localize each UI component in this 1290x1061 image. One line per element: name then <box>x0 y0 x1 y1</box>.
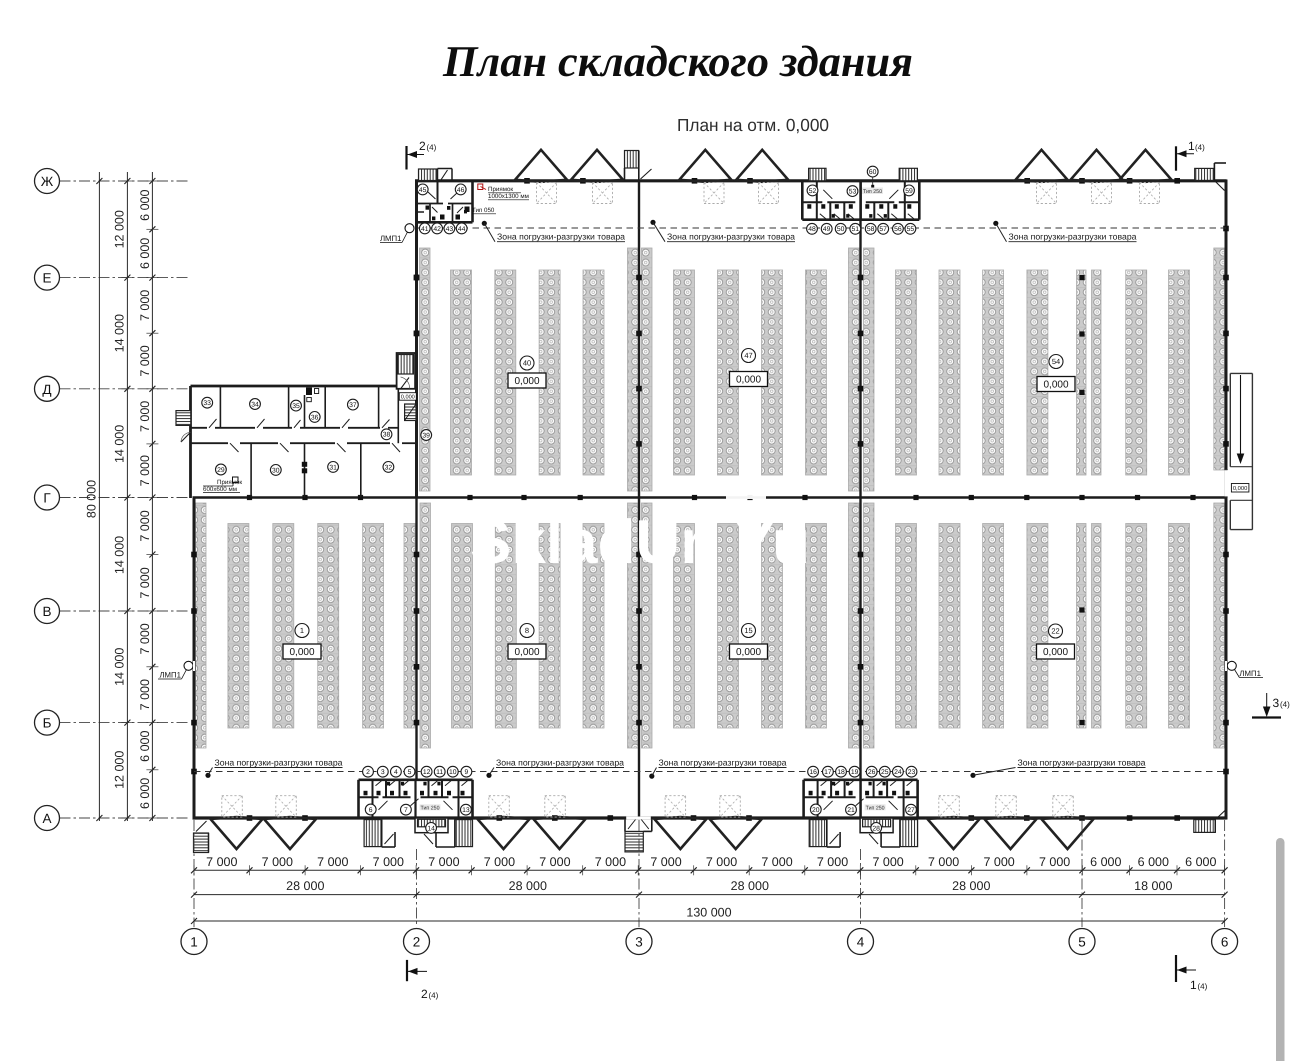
svg-text:Б: Б <box>43 716 52 731</box>
svg-text:1: 1 <box>300 626 304 635</box>
svg-text:28 000: 28 000 <box>286 879 324 893</box>
svg-text:7 000: 7 000 <box>138 401 152 432</box>
svg-text:14 000: 14 000 <box>113 536 127 574</box>
svg-text:130 000: 130 000 <box>686 905 731 919</box>
svg-text:40: 40 <box>523 359 531 368</box>
svg-text:(4): (4) <box>429 991 439 1000</box>
svg-text:Приямок: Приямок <box>217 479 242 486</box>
svg-text:14 000: 14 000 <box>113 314 127 352</box>
svg-text:7 000: 7 000 <box>138 510 152 541</box>
svg-text:Зона погрузки-разгрузки товара: Зона погрузки-разгрузки товара <box>659 757 787 767</box>
svg-text:0,000: 0,000 <box>736 375 761 386</box>
svg-text:23: 23 <box>908 769 916 776</box>
svg-text:А: А <box>42 811 51 826</box>
svg-text:19: 19 <box>851 769 859 776</box>
svg-text:7 000: 7 000 <box>262 855 293 869</box>
svg-text:Зона погрузки-разгрузки товара: Зона погрузки-разгрузки товара <box>497 232 625 242</box>
svg-text:44: 44 <box>458 226 466 233</box>
svg-text:28 000: 28 000 <box>509 879 547 893</box>
svg-text:7 000: 7 000 <box>761 855 792 869</box>
svg-text:17: 17 <box>824 769 832 776</box>
svg-text:Зона погрузки-разгрузки товара: Зона погрузки-разгрузки товара <box>496 757 624 767</box>
svg-text:9: 9 <box>465 769 469 776</box>
svg-text:2: 2 <box>421 987 428 1001</box>
svg-text:11: 11 <box>436 769 443 776</box>
svg-text:38: 38 <box>383 432 391 439</box>
svg-text:7 000: 7 000 <box>206 855 237 869</box>
svg-text:29: 29 <box>217 467 225 474</box>
svg-text:План складского здания: План складского здания <box>442 37 913 86</box>
svg-text:1: 1 <box>1188 139 1195 153</box>
svg-text:7 000: 7 000 <box>138 567 152 598</box>
svg-text:Г: Г <box>43 491 51 506</box>
svg-text:24: 24 <box>894 769 902 776</box>
svg-text:Зона погрузки-разгрузки товара: Зона погрузки-разгрузки товара <box>1018 757 1146 767</box>
svg-text:30: 30 <box>272 467 280 474</box>
svg-text:7 000: 7 000 <box>138 290 152 321</box>
svg-text:5: 5 <box>408 769 412 776</box>
svg-text:5: 5 <box>1078 935 1086 950</box>
svg-text:0,000: 0,000 <box>1043 380 1068 391</box>
svg-text:3: 3 <box>635 935 643 950</box>
svg-text:60: 60 <box>869 169 877 176</box>
svg-text:25: 25 <box>881 769 889 776</box>
svg-text:46: 46 <box>457 187 465 194</box>
svg-text:32: 32 <box>385 464 393 471</box>
svg-text:6 000: 6 000 <box>138 778 152 809</box>
svg-text:7 000: 7 000 <box>706 855 737 869</box>
svg-text:56: 56 <box>894 226 902 233</box>
svg-text:2: 2 <box>419 139 426 153</box>
svg-text:(4): (4) <box>1198 982 1208 991</box>
svg-text:80 000: 80 000 <box>85 480 99 518</box>
svg-text:53: 53 <box>849 189 857 196</box>
svg-text:27: 27 <box>907 807 915 814</box>
svg-text:6 000: 6 000 <box>1090 855 1121 869</box>
svg-text:7: 7 <box>404 807 408 814</box>
svg-text:0,000: 0,000 <box>514 376 539 387</box>
svg-text:12 000: 12 000 <box>113 210 127 248</box>
svg-text:12 000: 12 000 <box>113 751 127 789</box>
svg-text:28 000: 28 000 <box>731 879 769 893</box>
svg-text:6: 6 <box>369 807 373 814</box>
svg-text:7 000: 7 000 <box>872 855 903 869</box>
svg-text:3: 3 <box>381 769 385 776</box>
svg-text:18 000: 18 000 <box>1134 879 1172 893</box>
svg-text:42: 42 <box>433 226 441 233</box>
svg-text:6 000: 6 000 <box>1138 855 1169 869</box>
svg-text:(4): (4) <box>1280 700 1290 709</box>
svg-text:49: 49 <box>823 226 831 233</box>
svg-text:51: 51 <box>852 226 860 233</box>
svg-text:Тип 250: Тип 250 <box>863 189 882 195</box>
svg-text:SkladUn Yu: SkladUn Yu <box>470 508 810 577</box>
svg-text:6 000: 6 000 <box>138 238 152 269</box>
svg-text:7 000: 7 000 <box>1039 855 1070 869</box>
svg-text:7 000: 7 000 <box>650 855 681 869</box>
svg-text:26: 26 <box>868 769 876 776</box>
svg-text:0,000: 0,000 <box>401 395 415 401</box>
svg-text:14: 14 <box>427 825 435 832</box>
svg-text:41: 41 <box>421 226 429 233</box>
svg-text:50: 50 <box>837 226 845 233</box>
svg-text:Приямок: Приямок <box>488 186 513 193</box>
svg-text:Тип 250: Тип 250 <box>866 805 885 811</box>
svg-text:22: 22 <box>1051 627 1059 636</box>
svg-text:48: 48 <box>808 226 816 233</box>
svg-text:7 000: 7 000 <box>983 855 1014 869</box>
svg-text:ЛМП1: ЛМП1 <box>1239 669 1261 678</box>
svg-text:7 000: 7 000 <box>138 623 152 654</box>
svg-text:6 000: 6 000 <box>1185 855 1216 869</box>
svg-text:1: 1 <box>1190 978 1197 992</box>
svg-text:20: 20 <box>812 807 820 814</box>
svg-text:Тип 250: Тип 250 <box>421 805 440 811</box>
svg-text:34: 34 <box>251 401 259 408</box>
svg-text:7 000: 7 000 <box>928 855 959 869</box>
svg-text:0,000: 0,000 <box>289 647 314 658</box>
svg-text:36: 36 <box>311 414 319 421</box>
svg-text:Зона погрузки-разгрузки товара: Зона погрузки-разгрузки товара <box>215 757 343 767</box>
svg-text:28: 28 <box>872 825 880 832</box>
svg-text:6: 6 <box>1221 935 1229 950</box>
svg-text:ЛМП1: ЛМП1 <box>380 234 402 243</box>
svg-text:55: 55 <box>907 226 915 233</box>
svg-text:7 000: 7 000 <box>138 345 152 376</box>
svg-text:7 000: 7 000 <box>817 855 848 869</box>
svg-text:Тип 050: Тип 050 <box>472 207 495 214</box>
svg-text:13: 13 <box>462 807 470 814</box>
svg-text:7 000: 7 000 <box>317 855 348 869</box>
svg-text:37: 37 <box>349 402 357 409</box>
svg-text:14 000: 14 000 <box>113 648 127 686</box>
svg-text:52: 52 <box>809 188 817 195</box>
svg-text:0,000: 0,000 <box>1233 485 1248 492</box>
svg-text:(4): (4) <box>1195 143 1205 152</box>
svg-text:7 000: 7 000 <box>138 679 152 710</box>
svg-text:7 000: 7 000 <box>373 855 404 869</box>
svg-text:2: 2 <box>366 769 370 776</box>
svg-text:12: 12 <box>423 769 431 776</box>
svg-text:6 000: 6 000 <box>138 190 152 221</box>
svg-text:1: 1 <box>190 935 198 950</box>
svg-text:4: 4 <box>857 935 865 950</box>
svg-text:7 000: 7 000 <box>138 455 152 486</box>
svg-text:39: 39 <box>422 432 430 439</box>
svg-text:47: 47 <box>744 351 752 360</box>
svg-text:3: 3 <box>1273 696 1280 710</box>
svg-text:Зона погрузки-разгрузки товара: Зона погрузки-разгрузки товара <box>1009 232 1137 242</box>
svg-text:2: 2 <box>413 935 421 950</box>
svg-text:7 000: 7 000 <box>484 855 515 869</box>
svg-text:14 000: 14 000 <box>113 425 127 463</box>
svg-text:18: 18 <box>837 769 845 776</box>
svg-text:7 000: 7 000 <box>595 855 626 869</box>
svg-text:7 000: 7 000 <box>539 855 570 869</box>
svg-text:8: 8 <box>525 626 529 635</box>
svg-text:58: 58 <box>867 226 875 233</box>
svg-text:ЛМП1: ЛМП1 <box>159 671 181 680</box>
svg-text:План на отм. 0,000: План на отм. 0,000 <box>677 115 829 135</box>
svg-text:16: 16 <box>809 769 817 776</box>
svg-text:Е: Е <box>42 271 51 286</box>
svg-text:28 000: 28 000 <box>952 879 990 893</box>
svg-text:4: 4 <box>394 769 398 776</box>
svg-text:54: 54 <box>1052 357 1060 366</box>
svg-text:Зона погрузки-разгрузки товара: Зона погрузки-разгрузки товара <box>667 232 795 242</box>
svg-text:В: В <box>42 604 51 619</box>
svg-text:0,000: 0,000 <box>1043 647 1068 658</box>
svg-text:33: 33 <box>203 400 211 407</box>
svg-text:(4): (4) <box>427 143 437 152</box>
svg-text:57: 57 <box>879 226 887 233</box>
svg-text:0,000: 0,000 <box>514 647 539 658</box>
svg-text:1000х1300 мм: 1000х1300 мм <box>488 193 529 200</box>
svg-text:35: 35 <box>292 403 300 410</box>
svg-text:15: 15 <box>744 626 752 635</box>
svg-text:600х600 мм: 600х600 мм <box>203 486 237 493</box>
svg-text:21: 21 <box>847 807 855 814</box>
svg-text:43: 43 <box>446 226 454 233</box>
svg-text:Ж: Ж <box>41 174 54 189</box>
svg-text:7 000: 7 000 <box>428 855 459 869</box>
svg-text:59: 59 <box>905 188 913 195</box>
svg-text:0,000: 0,000 <box>736 647 761 658</box>
svg-text:Д: Д <box>42 382 51 397</box>
svg-text:31: 31 <box>329 464 337 471</box>
svg-text:10: 10 <box>449 769 457 776</box>
svg-text:6 000: 6 000 <box>138 731 152 762</box>
svg-text:45: 45 <box>419 187 427 194</box>
